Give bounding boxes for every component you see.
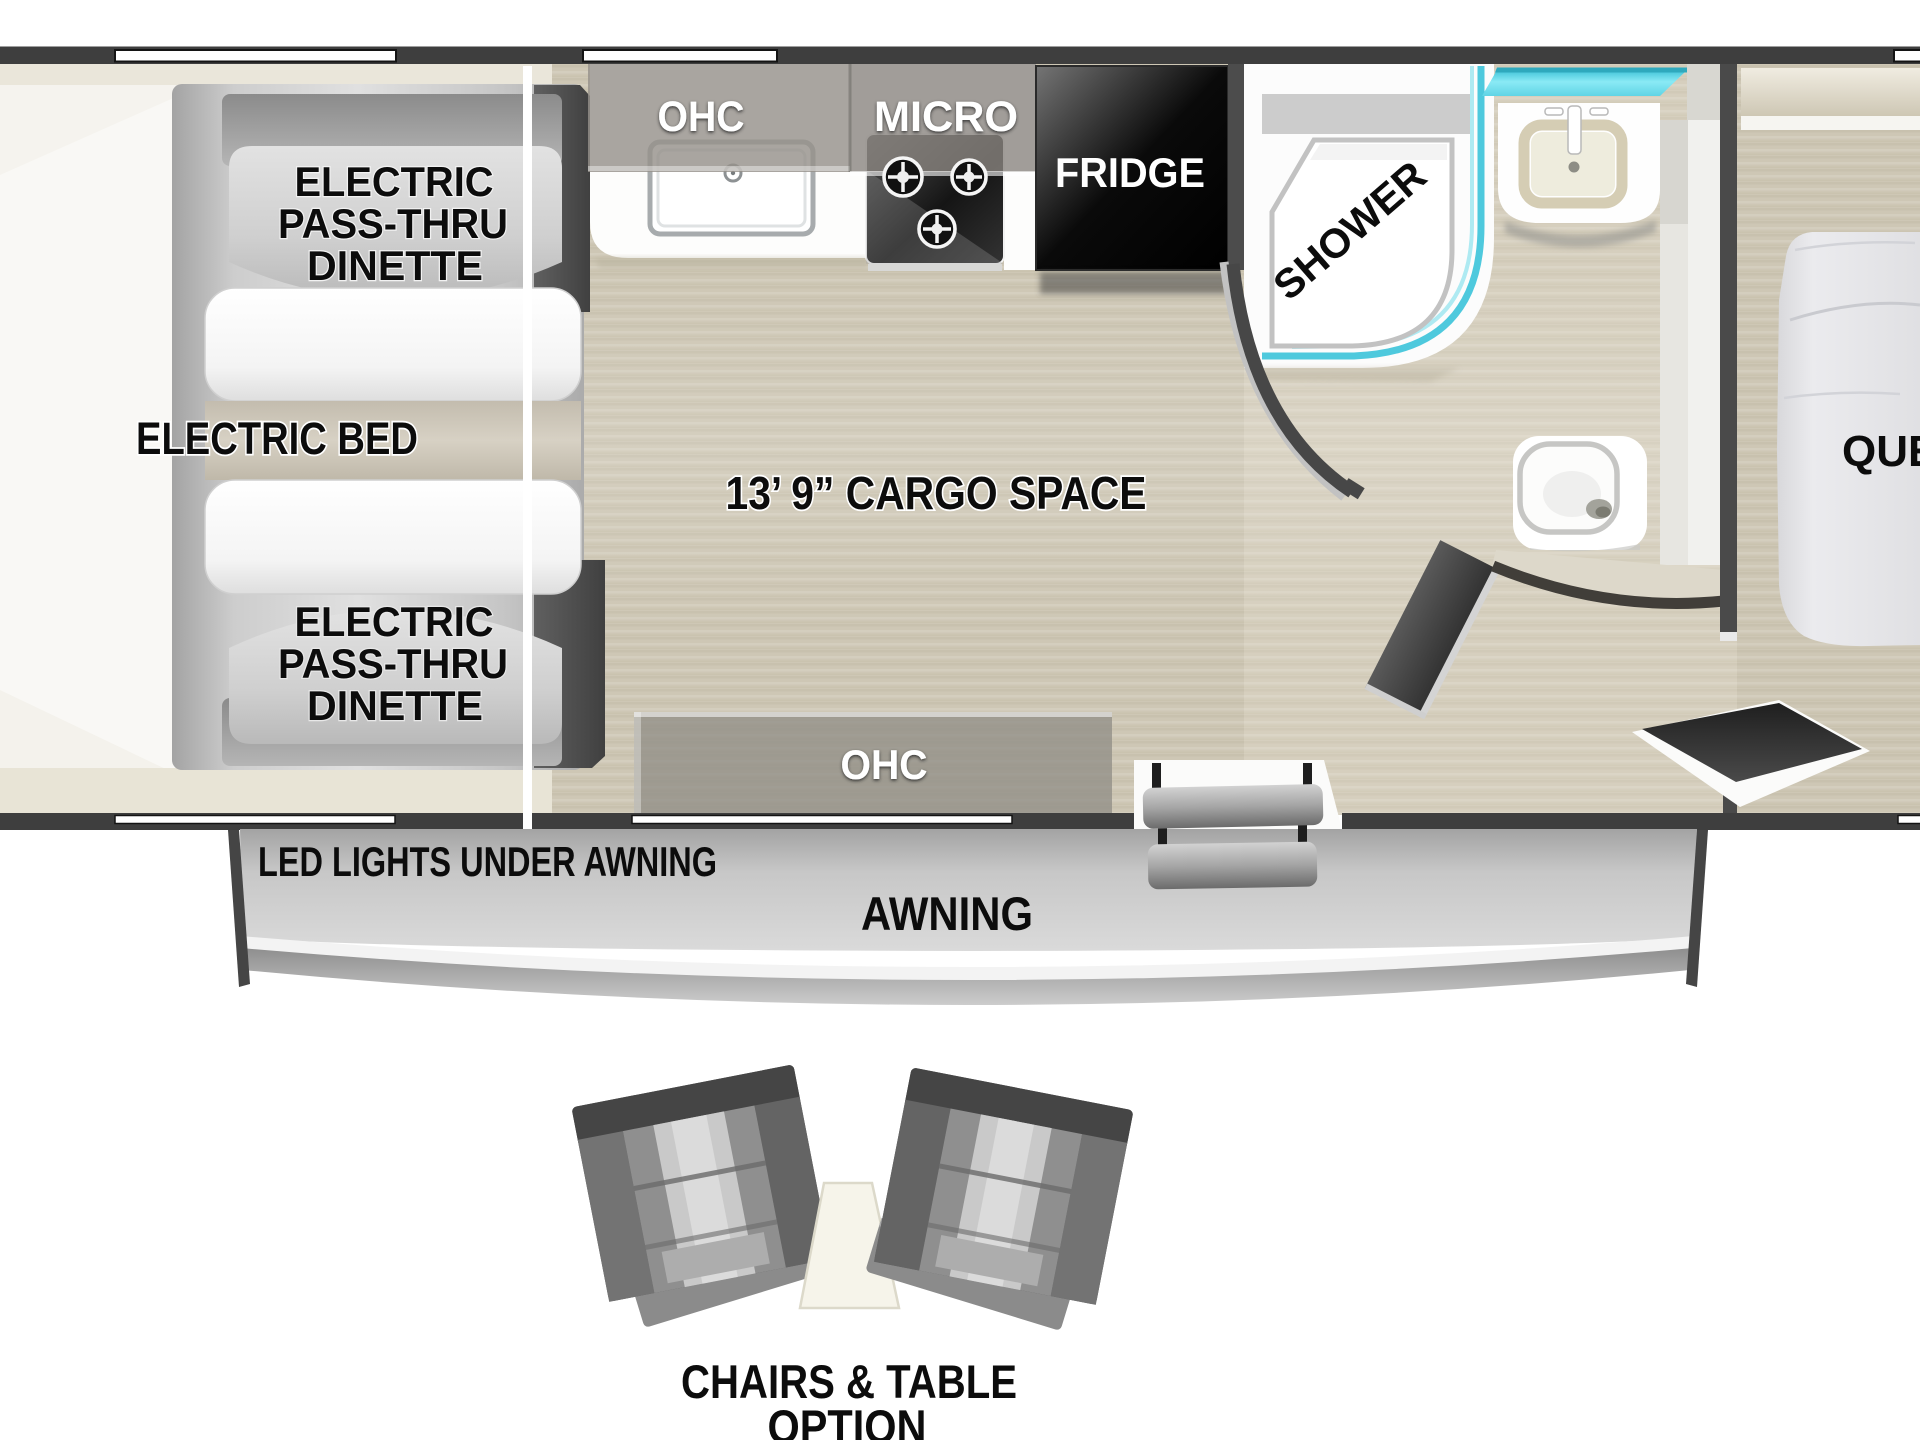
svg-text:DINETTE: DINETTE: [307, 682, 483, 729]
svg-text:OHC: OHC: [658, 93, 745, 141]
svg-text:LED LIGHTS UNDER AWNING: LED LIGHTS UNDER AWNING: [258, 838, 717, 885]
svg-text:OPTION: OPTION: [768, 1400, 927, 1440]
svg-text:PASS-THRU: PASS-THRU: [278, 640, 508, 687]
svg-text:AWNING: AWNING: [861, 887, 1033, 940]
svg-text:ELECTRIC: ELECTRIC: [295, 158, 494, 205]
svg-text:ELECTRIC BED: ELECTRIC BED: [136, 413, 418, 464]
svg-text:FRIDGE: FRIDGE: [1055, 149, 1205, 196]
svg-text:ELECTRIC: ELECTRIC: [295, 598, 494, 645]
svg-text:QUEEN: QUEEN: [1842, 427, 1920, 476]
svg-text:DINETTE: DINETTE: [307, 242, 483, 289]
svg-text:PASS-THRU: PASS-THRU: [278, 200, 508, 247]
svg-text:OHC: OHC: [841, 741, 928, 788]
svg-text:13’ 9” CARGO SPACE: 13’ 9” CARGO SPACE: [726, 467, 1147, 519]
svg-text:MICRO: MICRO: [874, 93, 1018, 141]
